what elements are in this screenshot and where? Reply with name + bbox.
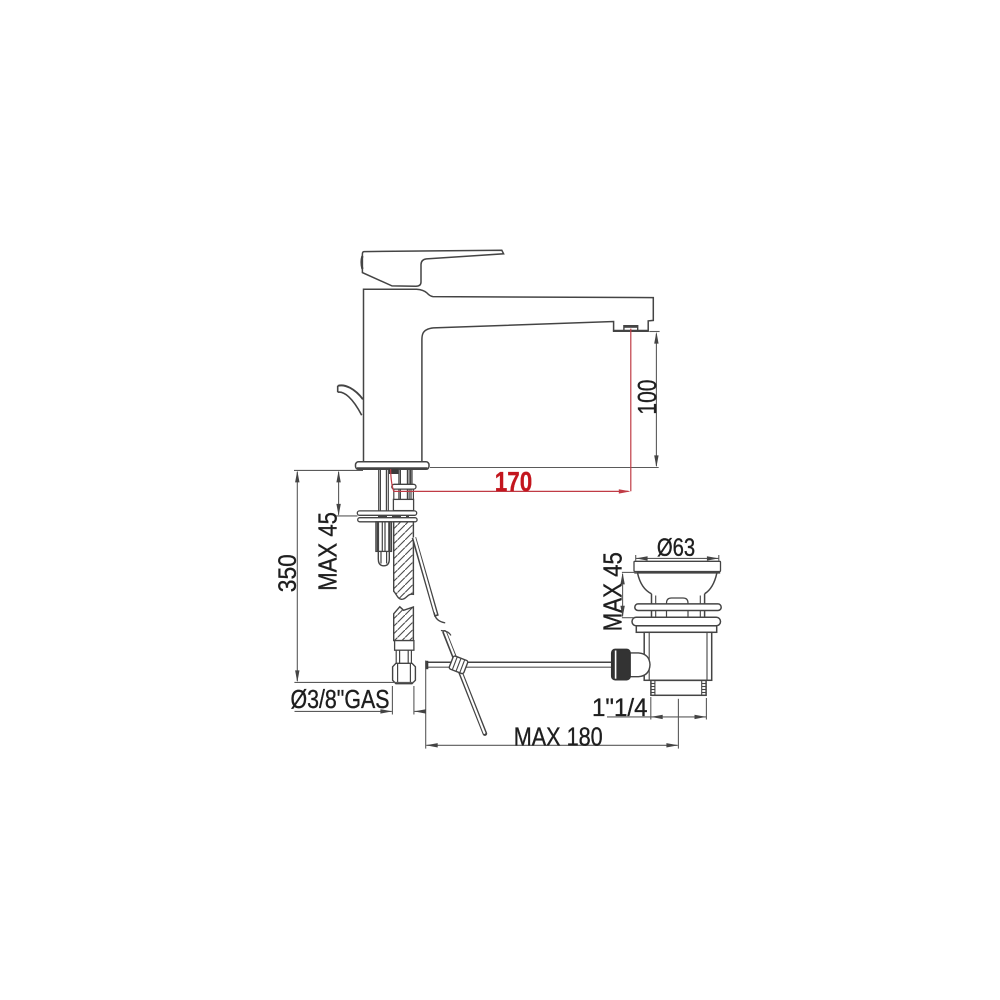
svg-text:MAX 180: MAX 180 bbox=[514, 721, 603, 751]
svg-text:100: 100 bbox=[632, 380, 662, 415]
svg-text:350: 350 bbox=[274, 554, 302, 592]
svg-text:Ø3/8"GAS: Ø3/8"GAS bbox=[291, 684, 390, 714]
svg-text:MAX 45: MAX 45 bbox=[312, 512, 342, 591]
svg-text:1"1/4: 1"1/4 bbox=[592, 694, 648, 722]
svg-text:170: 170 bbox=[495, 466, 533, 497]
svg-text:MAX 45: MAX 45 bbox=[598, 552, 628, 631]
svg-text:Ø63: Ø63 bbox=[657, 534, 695, 562]
